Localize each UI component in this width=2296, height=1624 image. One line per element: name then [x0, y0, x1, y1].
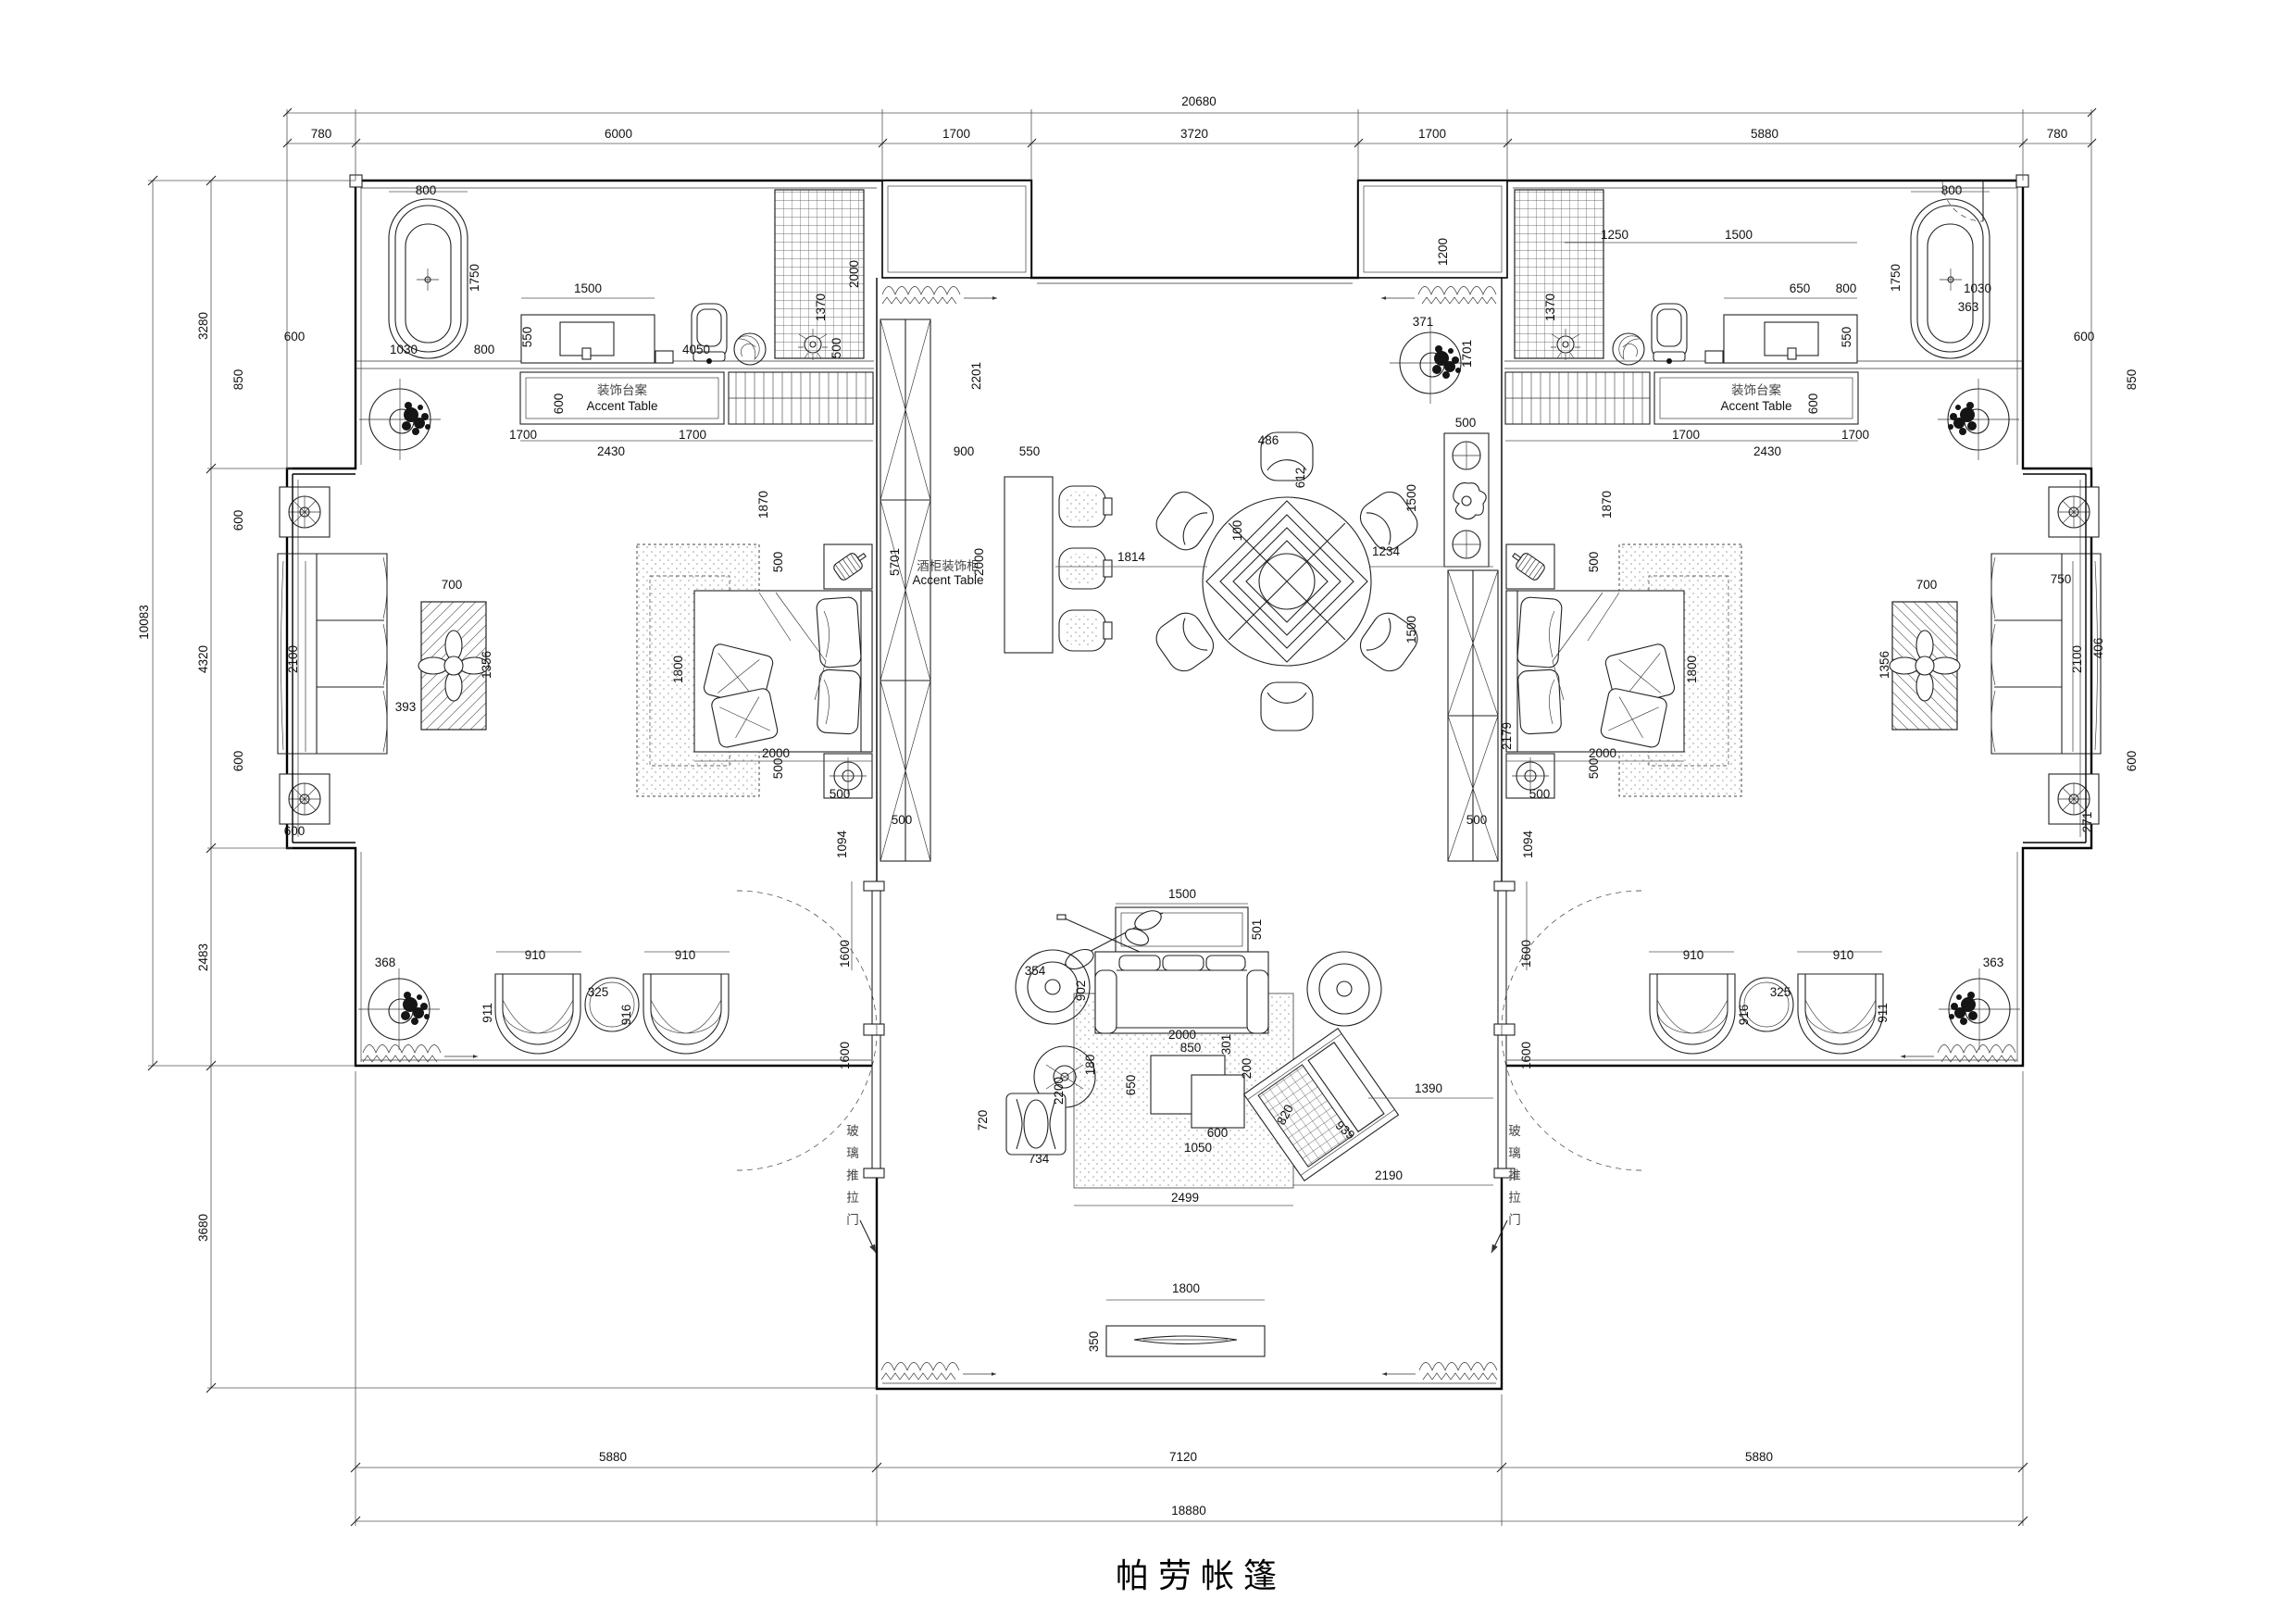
dim-label: 1030: [1964, 281, 1991, 295]
dim-label: 3280: [196, 312, 210, 340]
dim-label: 500: [771, 758, 785, 780]
dim-label: 2000: [847, 260, 861, 288]
dim-label: Accent Table: [586, 399, 657, 413]
dim-label: 910: [1683, 948, 1704, 962]
dim-label: 1800: [671, 656, 685, 683]
dim-label: 2200: [1052, 1077, 1066, 1105]
dim-label: 910: [675, 948, 696, 962]
dim-label: 1500: [1404, 616, 1418, 643]
dim-label: 3680: [196, 1214, 210, 1242]
dim-label: 612: [1293, 468, 1307, 489]
sofa: [1095, 952, 1268, 1033]
dim-label: 916: [619, 1005, 633, 1026]
dim-label: 2201: [969, 362, 983, 390]
dim-label: 800: [416, 183, 437, 197]
dim-label: 200: [1240, 1058, 1254, 1080]
dim-label: 1700: [1418, 127, 1446, 141]
plant-dining: [1390, 322, 1471, 404]
dim-label: 500: [1529, 787, 1551, 801]
dim-label: 850: [2125, 369, 2139, 391]
dim-label: 271: [2080, 812, 2094, 833]
dim-label: 600: [231, 751, 245, 772]
dim-label: 700: [1916, 578, 1938, 592]
dim-label: 500: [830, 787, 851, 801]
dim-label: 1700: [509, 428, 537, 442]
room-label: 推: [846, 1168, 859, 1183]
dim-label: 1370: [1543, 294, 1557, 321]
room-label: 璃: [846, 1145, 859, 1161]
room-label: 装饰台案: [597, 382, 647, 398]
coffee-table-small: [1192, 1075, 1244, 1128]
room-label: 拉: [1508, 1191, 1521, 1206]
dim-label: 910: [1833, 948, 1854, 962]
dim-label: 6000: [605, 127, 632, 141]
closet-right: [1358, 181, 1507, 278]
dim-label: 911: [1876, 1003, 1890, 1023]
dim-label: 1390: [1415, 1081, 1442, 1095]
dim-label: 1700: [1672, 428, 1700, 442]
dim-label: 1750: [468, 264, 481, 292]
room-label: 璃: [1508, 1145, 1521, 1161]
dim-label: 1370: [814, 294, 828, 321]
dim-label: 800: [474, 343, 495, 356]
room-label: 玻: [846, 1124, 859, 1139]
dim-label: 1200: [1436, 238, 1450, 266]
dim-label: 1500: [1725, 228, 1753, 242]
dim-label: 1870: [756, 491, 770, 518]
dim-label: 600: [2074, 330, 2095, 344]
dim-label: 1600: [838, 1042, 852, 1069]
dim-label: 500: [830, 338, 843, 359]
dim-label: 780: [311, 127, 332, 141]
dim-label: 500: [892, 813, 913, 827]
dim-label: 500: [1587, 758, 1601, 780]
dim-label: 3720: [1180, 127, 1208, 141]
dim-label: 1094: [1521, 830, 1535, 858]
room-label: 酒柜装饰柜: [917, 559, 980, 574]
room-label: 玻: [1508, 1124, 1521, 1139]
dim-label: 1500: [1168, 887, 1196, 901]
dim-label: 916: [1737, 1005, 1751, 1026]
dim-label: 1701: [1460, 340, 1474, 368]
dim-label: 1814: [1117, 550, 1146, 564]
dim-label: 18880: [1171, 1504, 1206, 1518]
dim-label: 1094: [835, 830, 849, 858]
dim-label: 2430: [1753, 444, 1781, 458]
dim-label: 1870: [1600, 491, 1614, 518]
dim-label: 600: [552, 394, 566, 415]
dim-label: 301: [1219, 1034, 1233, 1056]
dim-label: 650: [1124, 1075, 1138, 1096]
dim-label: 1500: [1404, 484, 1418, 512]
dim-label: 7120: [1169, 1450, 1197, 1464]
dim-label: 780: [2047, 127, 2068, 141]
room-label: 门: [846, 1213, 859, 1228]
dim-label: 600: [2125, 751, 2139, 772]
dim-label: 1600: [838, 940, 852, 968]
dim-label: 500: [1455, 416, 1477, 430]
closet-left: [882, 181, 1031, 278]
dim-label: 1356: [480, 651, 493, 679]
dim-label: 910: [525, 948, 546, 962]
dim-label: 600: [1207, 1126, 1229, 1140]
dim-label: 1500: [574, 281, 602, 295]
dim-label: 600: [284, 330, 306, 344]
dim-label: 1750: [1889, 264, 1903, 292]
dim-label: 850: [1180, 1041, 1202, 1055]
dim-label: 750: [2051, 572, 2072, 586]
glass-door-arrow-left: [860, 1220, 876, 1253]
dim-label: 2430: [597, 444, 625, 458]
dim-label: 650: [1790, 281, 1811, 295]
dim-label: 734: [1029, 1152, 1050, 1166]
dim-label: 500: [1466, 813, 1488, 827]
dim-label: 1800: [1685, 656, 1699, 683]
dim-label: 1356: [1878, 651, 1891, 679]
glass-door-arrow-right: [1491, 1220, 1507, 1253]
room-label: 门: [1508, 1213, 1521, 1228]
dim-label: 550: [1019, 444, 1041, 458]
dim-label: 2000: [972, 548, 986, 576]
dim-label: 5880: [1751, 127, 1778, 141]
dim-label: 1700: [942, 127, 970, 141]
dim-label: 368: [375, 956, 396, 969]
dim-label: 5701: [888, 548, 902, 576]
dim-label: 180: [1083, 1055, 1097, 1076]
dim-label: 600: [1806, 394, 1820, 415]
dim-label: 500: [1587, 552, 1601, 573]
dim-label: 5880: [599, 1450, 627, 1464]
dim-label: 700: [442, 578, 463, 592]
dim-label: 850: [231, 369, 245, 391]
dim-label: 1600: [1519, 1042, 1533, 1069]
dim-label: 325: [1770, 985, 1791, 999]
dim-label: 1030: [390, 343, 418, 356]
dim-label: 354: [1025, 964, 1046, 978]
dim-label: Accent Table: [1720, 399, 1791, 413]
room-label: 拉: [846, 1191, 859, 1206]
dim-label: 1234: [1372, 544, 1401, 558]
dim-label: 550: [1840, 327, 1853, 348]
dim-label: 325: [588, 985, 609, 999]
dim-label: 902: [1074, 981, 1088, 1002]
dim-label: 2100: [286, 645, 300, 673]
dim-label: 720: [976, 1110, 990, 1131]
dim-label: 371: [1413, 315, 1434, 329]
dim-label: 911: [480, 1003, 494, 1023]
dining-set: [1150, 432, 1423, 731]
dim-label: 1800: [1172, 1281, 1200, 1295]
dim-label: 2179: [1500, 722, 1514, 750]
dim-label: 393: [395, 700, 417, 714]
dim-label: 500: [771, 552, 785, 573]
dim-label: 5880: [1745, 1450, 1773, 1464]
floor-lamp-right: [1307, 952, 1381, 1026]
dim-label: 2483: [196, 943, 210, 971]
annotation-layer: 2068078060001700372017005880780100833280…: [137, 94, 2139, 1518]
dim-label: 2190: [1375, 1168, 1403, 1182]
dim-label: 350: [1087, 1331, 1101, 1353]
wine-display-cabinet-left: [880, 319, 930, 861]
dim-label: 2100: [2070, 645, 2084, 673]
dim-label: 600: [284, 824, 306, 838]
room-label: 装饰台案: [1731, 382, 1781, 398]
dim-label: 486: [1258, 433, 1279, 447]
dim-label: 4320: [196, 645, 210, 673]
dim-label: 1700: [1841, 428, 1869, 442]
dim-label: 363: [1983, 956, 2004, 969]
dim-label: 550: [520, 327, 534, 348]
dim-label: 600: [231, 510, 245, 531]
tv-console: [1106, 1326, 1265, 1356]
dim-label: 100: [1230, 520, 1244, 542]
dim-label: 363: [1958, 300, 1979, 314]
dim-label: 1700: [679, 428, 706, 442]
bar-counter: [1004, 477, 1112, 653]
dim-label: 4050: [682, 343, 710, 356]
dim-label: 900: [954, 444, 975, 458]
dim-label: 20680: [1181, 94, 1217, 108]
dim-label: 1250: [1601, 228, 1628, 242]
floor-plan-page: 2068078060001700372017005880780100833280…: [0, 0, 2296, 1624]
dim-label: 2000: [1168, 1028, 1196, 1042]
dim-label: 1600: [1519, 940, 1533, 968]
room-label: 推: [1508, 1168, 1521, 1183]
dim-label: 406: [2091, 638, 2105, 659]
drawing-title: 帕劳帐篷: [1116, 1557, 1286, 1595]
dim-label: 10083: [137, 605, 151, 640]
dim-label: 2499: [1171, 1191, 1199, 1205]
dim-label: 501: [1250, 919, 1264, 941]
floor-plan-drawing: 2068078060001700372017005880780100833280…: [0, 0, 2296, 1624]
dim-label: 1050: [1184, 1141, 1212, 1155]
console-right: [1444, 433, 1489, 567]
dim-label: 800: [1941, 183, 1963, 197]
dim-label: 800: [1836, 281, 1857, 295]
